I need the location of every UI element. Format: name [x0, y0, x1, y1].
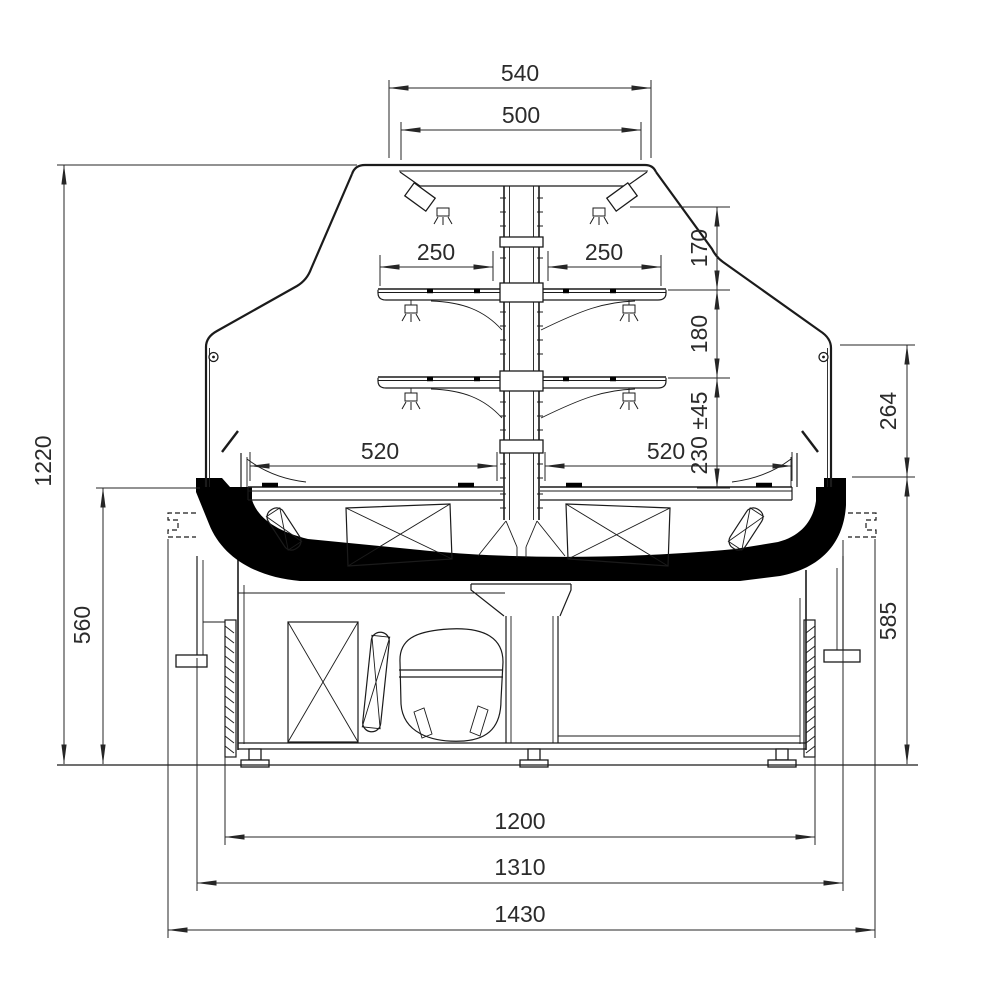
front-panel-left — [176, 556, 225, 667]
dimension-shelf-to-deck: 230 ±45 — [686, 378, 730, 488]
front-rail-left — [222, 431, 306, 487]
dimension-label: 1220 — [30, 435, 56, 486]
dimension-front-panel-height: 585 — [875, 477, 907, 764]
canopy-roof — [352, 165, 656, 174]
divider-walls — [471, 584, 571, 743]
dimension-shelf-left-depth: 250 — [380, 239, 493, 286]
column-collar — [500, 237, 543, 247]
technical-drawing-page: 540 500 250 250 170 18 — [0, 0, 1000, 1000]
shelf-lamp-icon — [402, 305, 420, 322]
mounting-bracket-right — [848, 513, 876, 537]
dimension-label: 560 — [69, 606, 95, 644]
compressor-foot-right — [470, 706, 488, 736]
dimension-label: 540 — [501, 60, 539, 86]
dimension-label: 520 — [647, 438, 685, 464]
foot-stem-center — [528, 749, 540, 760]
dimension-label: 520 — [361, 438, 399, 464]
shelf-bracket-right — [541, 389, 635, 418]
dimension-label: 250 — [417, 239, 455, 265]
deck-left — [248, 487, 503, 500]
kick-pad-right — [824, 650, 860, 662]
canopy-lamp-icon — [590, 208, 608, 225]
dimension-deck-left-depth: 520 — [250, 438, 497, 481]
dimension-label: 1310 — [494, 854, 545, 880]
foot-stem-left — [249, 749, 261, 760]
column-shelf-mount-upper — [500, 283, 543, 302]
dimension-label: 230 ±45 — [686, 392, 712, 475]
louver-panel-left — [225, 620, 236, 757]
shelf-lamp-icon — [620, 305, 638, 322]
adjustable-feet — [241, 749, 796, 767]
shelf-bracket-left — [431, 301, 502, 330]
spotlight-left — [405, 183, 435, 211]
dimension-shelf-right-depth: 250 — [548, 239, 661, 286]
machine-fan — [362, 631, 390, 732]
shelf-lamp-icon — [620, 393, 638, 410]
dimension-shelf-to-shelf: 180 — [668, 290, 730, 378]
dimension-deck-right-depth: 520 — [545, 438, 792, 481]
column-support-struts — [478, 521, 565, 558]
column-shelf-mount-lower — [500, 371, 543, 391]
dimension-label: 1200 — [494, 808, 545, 834]
mounting-bracket-left — [168, 513, 196, 537]
dimension-label: 585 — [875, 602, 901, 640]
display-counter-section-drawing: 540 500 250 250 170 18 — [0, 0, 1000, 1000]
dimension-front-glass-height: 264 — [840, 345, 915, 477]
center-column — [500, 186, 543, 520]
dimension-canopy-to-shelf: 170 — [630, 207, 730, 290]
dimension-label: 1430 — [494, 901, 545, 927]
dimension-counter-height: 560 — [69, 488, 200, 764]
deck-right — [540, 487, 792, 500]
front-panel-right — [824, 556, 860, 662]
dimension-canopy-inner-width: 500 — [401, 102, 641, 160]
dimension-label: 264 — [875, 392, 901, 431]
dimension-label: 170 — [686, 229, 712, 267]
kick-pad-left — [176, 655, 207, 667]
dimension-label: 250 — [585, 239, 623, 265]
dimension-base-width: 1200 — [225, 757, 815, 845]
dimensions: 540 500 250 250 170 18 — [30, 60, 915, 938]
dimension-label: 180 — [686, 315, 712, 353]
ticket-rail-left — [222, 431, 238, 452]
front-rail-right — [732, 431, 818, 487]
glass-panel-left — [206, 174, 352, 487]
dimension-overall-height: 1220 — [30, 165, 357, 764]
foot-stem-right — [776, 749, 788, 760]
canopy-lamp-icon — [434, 208, 452, 225]
column-collar — [500, 440, 543, 453]
shelf-lamp-icon — [402, 393, 420, 410]
column-pedestal — [471, 584, 571, 616]
foot-pad-right — [768, 760, 796, 767]
base-cabinet — [176, 556, 860, 767]
compressor-foot-left — [414, 708, 432, 738]
foot-pad-left — [241, 760, 269, 767]
condenser-coil — [288, 622, 358, 742]
compressor — [399, 629, 503, 741]
foot-pad-center — [520, 760, 548, 767]
dimension-label: 500 — [502, 102, 540, 128]
ticket-rail-right — [802, 431, 818, 452]
shelf-bracket-right — [541, 301, 635, 330]
shelf-bracket-left — [431, 389, 502, 418]
